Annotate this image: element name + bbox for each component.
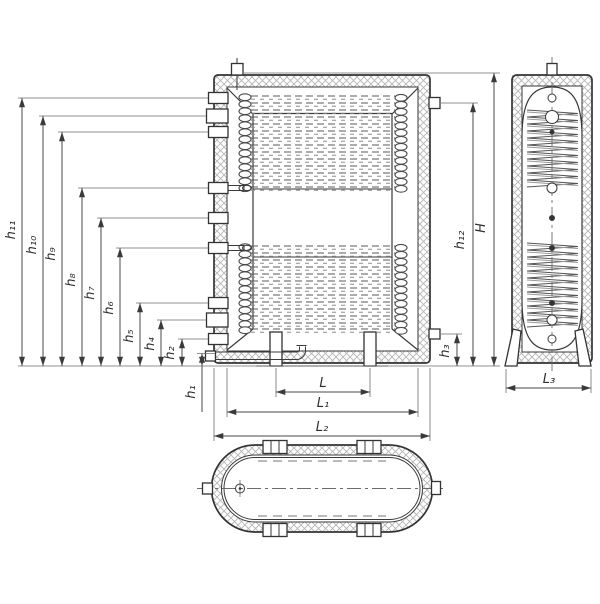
top-nozzle	[547, 64, 557, 76]
dim-label-h3: h₃	[438, 344, 453, 357]
front-view	[206, 58, 441, 366]
port-stub	[209, 213, 229, 224]
dim-label-L: L	[319, 376, 326, 391]
dim-label-h11: h₁₁	[4, 221, 19, 240]
port-stub	[209, 127, 229, 138]
port-stub	[203, 483, 213, 494]
dim-label-L3: L₃	[543, 372, 555, 387]
leg-tab	[357, 524, 381, 537]
port-stub	[432, 482, 441, 495]
coil-row	[239, 129, 407, 136]
coil-row	[239, 157, 407, 164]
drawing-canvas: h₁₁ h₁₀ h₉ h₈ h₇ h₆ h₅ h₄ h₂ h₁ h₃ h₁₂ H	[0, 0, 600, 600]
port-stub	[232, 64, 244, 76]
port-stub	[207, 109, 229, 123]
dim-label-h5: h₅	[122, 329, 137, 342]
coil-row	[239, 171, 407, 178]
dim-label-H: H	[474, 223, 489, 233]
coil-row	[239, 101, 407, 108]
coil-row	[239, 244, 407, 251]
dim-label-h1: h₁	[184, 385, 199, 398]
leg-tab	[263, 441, 287, 454]
coil-row	[239, 122, 407, 129]
port-stub	[209, 243, 229, 254]
coil-row	[239, 143, 407, 150]
coil-row	[239, 150, 407, 157]
dim-label-h8: h₈	[64, 273, 79, 286]
upper-coil	[239, 94, 407, 192]
leg-tab	[263, 524, 287, 537]
coil-row	[239, 272, 407, 279]
dim-label-h12: h₁₂	[453, 231, 468, 250]
side-dimension: L₃	[506, 369, 591, 393]
coil-row	[239, 94, 407, 101]
leg-tab	[357, 441, 381, 454]
coil-row	[239, 265, 407, 272]
coil-row	[239, 258, 407, 265]
side-view	[505, 57, 592, 372]
coil-row	[239, 327, 407, 334]
side-port-circles	[546, 94, 559, 343]
coil-row	[239, 286, 407, 293]
coil-row	[239, 321, 407, 328]
dim-label-L2: L₂	[316, 420, 328, 435]
top-view	[197, 441, 447, 537]
coil-row	[239, 314, 407, 321]
leg	[364, 332, 376, 366]
leg	[270, 332, 282, 366]
port-stub	[207, 313, 229, 327]
dim-label-h2: h₂	[163, 346, 178, 359]
dim-label-h10: h₁₀	[25, 235, 40, 254]
port-stub	[429, 329, 440, 339]
side-lower-coil	[527, 243, 578, 327]
dim-label-h4: h₄	[143, 336, 158, 350]
port-stub	[209, 183, 229, 194]
dim-label-h7: h₇	[83, 285, 98, 299]
coil-row	[239, 178, 407, 185]
bottom-dimensions: L L₁ L₂	[214, 368, 430, 441]
dim-label-h9: h₉	[44, 247, 59, 260]
port-stub	[209, 93, 229, 104]
coil-row	[239, 300, 407, 307]
top-fitting-circle	[236, 480, 245, 497]
coil-row	[239, 279, 407, 286]
tank-technical-drawing: h₁₁ h₁₀ h₉ h₈ h₇ h₆ h₅ h₄ h₂ h₁ h₃ h₁₂ H	[0, 0, 600, 600]
coil-row	[239, 115, 407, 122]
coil-row	[239, 136, 407, 143]
front-inner-shell	[227, 87, 418, 351]
port-stub	[429, 98, 440, 109]
port-stub	[209, 298, 229, 309]
coil-row	[239, 164, 407, 171]
dim-label-L1: L₁	[317, 396, 329, 411]
coil-row	[239, 293, 407, 300]
dimension-lines	[457, 73, 494, 366]
coil-row	[239, 307, 407, 314]
port-stub	[209, 334, 229, 345]
dim-label-h6: h₆	[102, 301, 117, 314]
drain-flange	[206, 351, 216, 361]
